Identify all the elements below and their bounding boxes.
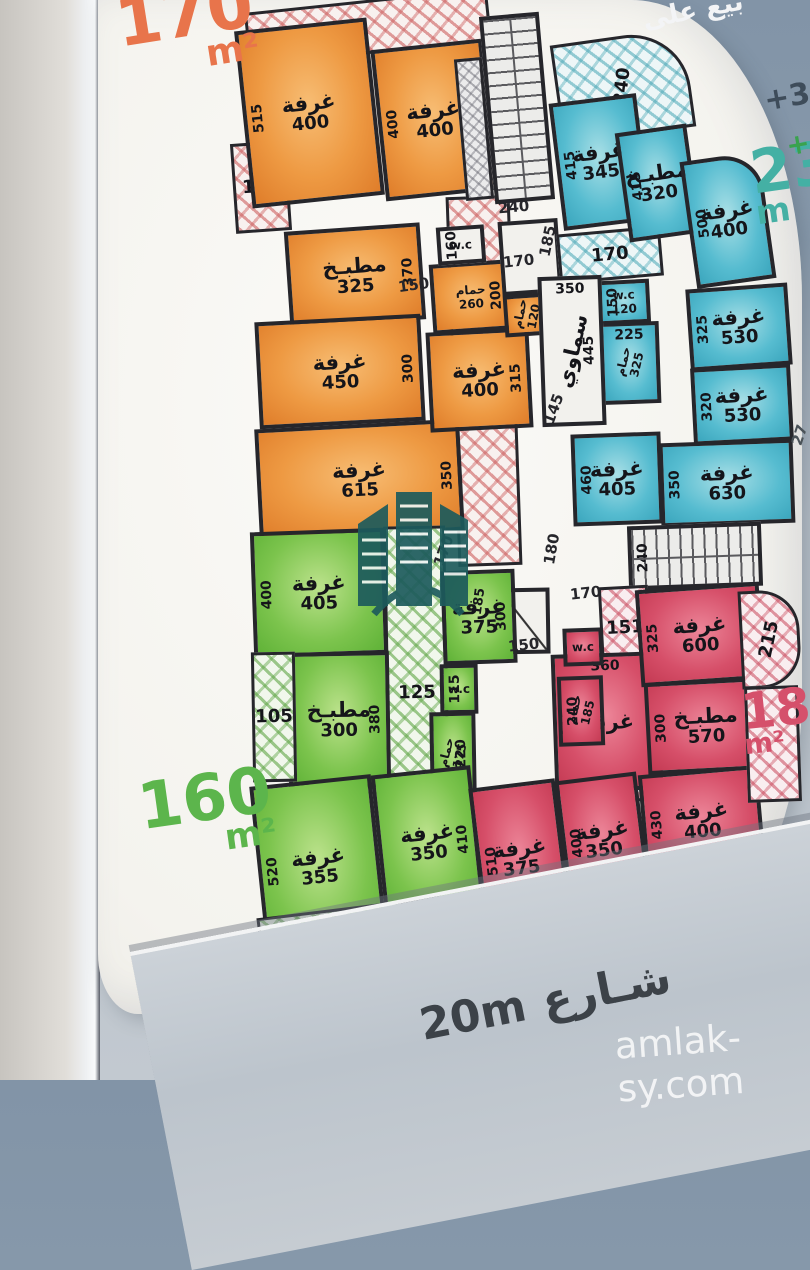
dimension-label: 380: [367, 705, 384, 735]
room-value: 260: [459, 297, 485, 311]
dimension-label: 170: [502, 250, 535, 271]
dimension-label: 240: [497, 197, 530, 218]
dimension-label: 410: [453, 824, 472, 855]
dimension-label: 325: [644, 623, 662, 653]
area-unit: m: [754, 195, 792, 228]
room-value: 355: [301, 867, 340, 890]
area-tag-160: 160 m²: [135, 763, 279, 865]
room-name: مطبـخ: [673, 703, 738, 728]
room-value: 450: [321, 373, 360, 394]
dimension-label: 170: [569, 582, 602, 603]
dimension-label: 315: [507, 363, 525, 393]
dimension-label: 225: [614, 327, 644, 344]
floor-label-3: +3: [783, 123, 810, 163]
dimension-label: 350: [667, 470, 684, 500]
watermark: amlak-sy.com: [613, 1011, 810, 1110]
room-value: 405: [598, 480, 636, 500]
dimension-label: 430: [648, 810, 666, 841]
room-wc: w.c: [562, 627, 603, 666]
dimension-label: 350: [555, 281, 585, 298]
dimension-label: 320: [698, 391, 716, 421]
room-value: 530: [720, 328, 759, 349]
room-value: 325: [336, 276, 375, 297]
dimension-label: 300: [399, 353, 417, 383]
dimension-label: 400: [567, 828, 586, 859]
room-value: 170: [590, 244, 629, 266]
room-value: 400: [416, 120, 455, 143]
dimension-label: 325: [694, 314, 712, 344]
room-bath: 240حمام185: [557, 675, 605, 747]
room-value: 215: [757, 619, 783, 660]
dimension-label: 240: [635, 543, 652, 573]
room-bedroom: 320غرفة530: [690, 363, 794, 445]
room-value: 345: [582, 162, 622, 185]
room-bedroom: 300غرفة450: [254, 314, 425, 430]
room-value: 300: [320, 722, 358, 742]
room-bedroom: 325غرفة530: [685, 283, 792, 372]
room-name: w.c: [572, 640, 594, 653]
dimension-label: 460: [579, 465, 596, 495]
room-value: 530: [723, 406, 762, 427]
room-bedroom: 350غرفة630: [659, 439, 796, 528]
room-name: غرفة: [451, 358, 506, 383]
area-tag-185: 185 m²: [739, 681, 810, 757]
area-unit: m²: [204, 31, 262, 70]
dimension-label: 300: [652, 713, 670, 743]
area-unit: m²: [223, 817, 279, 854]
dimension-label: 150: [604, 288, 622, 318]
room-kitchen: 370مطبـخ325: [284, 222, 426, 328]
room-value: 105: [255, 707, 293, 727]
room-value: 400: [461, 381, 500, 402]
dimension-label: 300: [492, 601, 509, 631]
room-value: 350: [410, 843, 449, 866]
room-wc: 160w.c: [436, 224, 487, 265]
room-value: 600: [681, 635, 720, 656]
room-value: 125: [398, 683, 436, 703]
room-wc: 115w.c: [440, 664, 479, 715]
dimension-label: 400: [384, 109, 403, 140]
room-bedroom: 460غرفة405: [570, 431, 663, 526]
dimension-label: 180: [540, 532, 563, 566]
stairs: 240: [627, 522, 763, 591]
room-bedroom: 315غرفة400: [425, 327, 533, 432]
dimension-label: 520: [264, 856, 283, 887]
room-value: 400: [710, 219, 750, 243]
area-unit: m²: [743, 730, 786, 758]
room-value: 400: [291, 113, 330, 136]
room-value: 630: [708, 484, 746, 504]
balcony-hatched: 215: [737, 588, 802, 689]
dimension-label: 510: [482, 846, 501, 877]
dimension-label: 150: [507, 634, 540, 655]
room-value: 405: [300, 594, 338, 614]
room-value: 570: [687, 727, 726, 748]
dimension-label: 415: [561, 150, 580, 181]
dimension-label: 400: [259, 580, 276, 610]
room-wc: 150w.c120: [597, 279, 651, 326]
dimension-label: 515: [249, 103, 268, 134]
dimension-label: 160: [443, 230, 461, 260]
room-name: مطبـخ: [321, 252, 387, 278]
dimension-label: 150: [397, 274, 431, 296]
dimension-label: 115: [447, 674, 464, 704]
room-name: مطبـخ: [306, 698, 371, 721]
amlak-logo-icon: [352, 466, 484, 618]
room-kitchen: 380مطبـخ300: [287, 651, 391, 789]
room-bath: 225حمام325: [599, 321, 662, 405]
